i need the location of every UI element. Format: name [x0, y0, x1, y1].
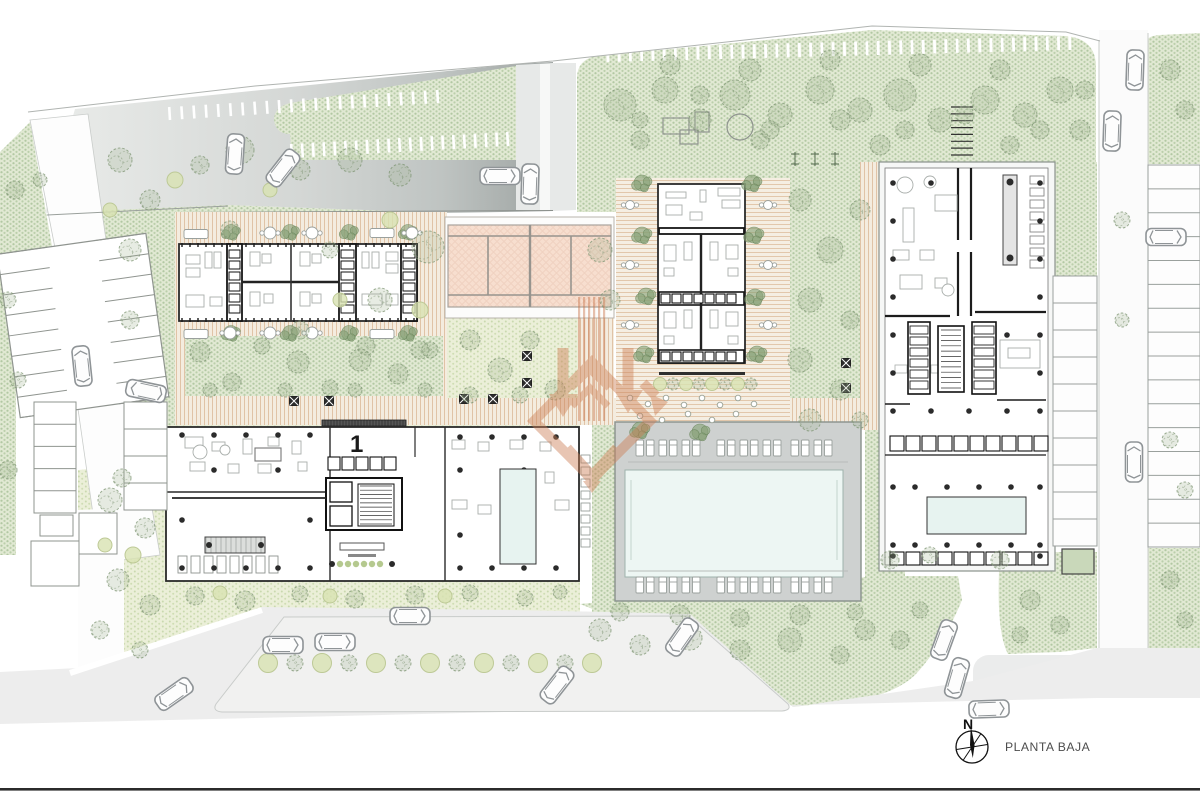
svg-text:1: 1 — [350, 431, 363, 458]
svg-text:PLANTA BAJA: PLANTA BAJA — [1005, 740, 1091, 754]
svg-text:N: N — [963, 716, 973, 732]
